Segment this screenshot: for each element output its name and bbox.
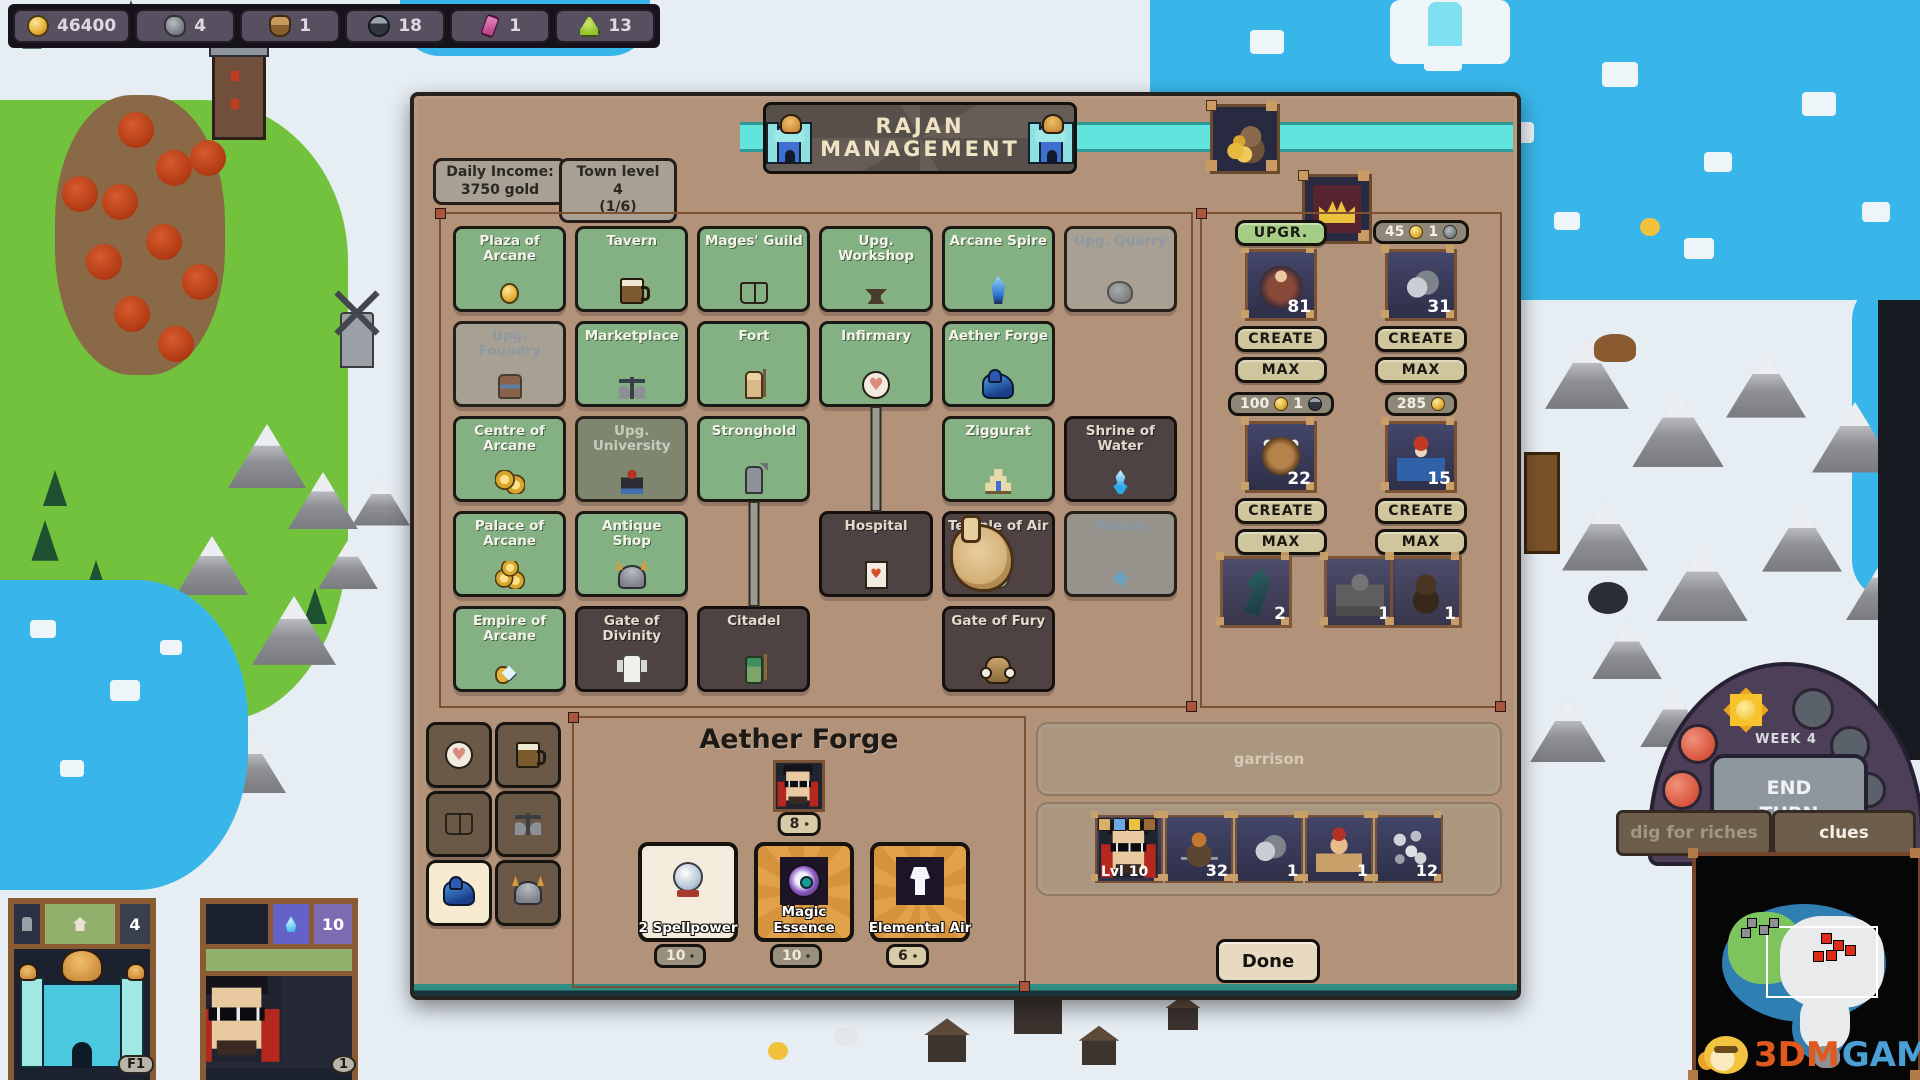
recruit-slot-dwarf: 5081CREATEMAXUPGR. [1216, 220, 1346, 383]
max-button[interactable]: MAX [1375, 357, 1467, 383]
recruit-panel: 5081CREATEMAXUPGR.45131CREATEMAX100122CR… [1200, 212, 1498, 704]
town-portrait-castle[interactable] [14, 949, 150, 1068]
gems-icon [578, 15, 600, 37]
building-aether-forge[interactable]: Aether Forge [942, 321, 1055, 407]
shortcut-tavern[interactable] [495, 722, 561, 788]
minimap-enemy-marker [1826, 950, 1837, 961]
hero-mana-value: 10 [314, 904, 352, 944]
palacegem-icon [1109, 565, 1131, 589]
building-label: Fort [738, 329, 769, 344]
item-label: Magic Essence [750, 904, 858, 936]
angel-icon [622, 654, 642, 684]
spire-icon [989, 276, 1007, 304]
map-goat [834, 1028, 858, 1046]
forge-icon [443, 880, 475, 906]
building-label: Plaza of Arcane [459, 234, 560, 264]
building-icon-wrap [495, 462, 525, 496]
building-label: Empire of Arcane [459, 614, 560, 644]
building-gate-of-divinity[interactable]: Gate of Divinity [575, 606, 688, 692]
map-decor [60, 760, 84, 777]
shortcut-mages-guild[interactable] [426, 791, 492, 857]
building-detail-panel: Aether Forge 8 2 Spellpower10Magic Essen… [572, 716, 1026, 988]
building-label: Upg. Workshop [825, 234, 926, 264]
game-screen: 464004118113 RAJAN MANAGEMENT Daily Inco… [0, 0, 1920, 1080]
resource-wood: 1 [240, 9, 340, 43]
map-decor [1592, 622, 1662, 679]
building-palace[interactable]: Palace [1064, 511, 1177, 597]
resource-gems: 13 [555, 9, 655, 43]
helm-icon [618, 565, 646, 589]
golem-sprite [1336, 568, 1384, 616]
map-horse [1594, 334, 1636, 362]
item-icon-frame [780, 857, 828, 905]
building-upg-university[interactable]: Upg. University [575, 416, 688, 502]
watermark: 3DMGAME [1700, 1032, 1920, 1078]
map-chick [768, 1042, 788, 1060]
town-slot-panel[interactable]: 4 F1 [8, 898, 156, 1080]
map-hut [1082, 1038, 1116, 1065]
create-button[interactable]: CREATE [1235, 326, 1327, 352]
ore-icon [1443, 225, 1457, 239]
map-decor [158, 326, 194, 362]
building-ziggurat[interactable]: Ziggurat [942, 416, 1055, 502]
map-cauldron [1588, 582, 1628, 614]
building-icon-wrap [745, 462, 763, 496]
max-button[interactable]: MAX [1235, 529, 1327, 555]
building-shrine-of-water[interactable]: Shrine of Water [1064, 416, 1177, 502]
book-icon [740, 282, 768, 304]
item-cost-chip: 10 [654, 944, 706, 968]
mana-icon [268, 904, 314, 944]
army-count: Lvl 10 [1101, 864, 1158, 880]
map-windmill [340, 312, 374, 368]
building-icon-wrap [745, 367, 763, 401]
gold-icon [1409, 225, 1423, 239]
merchant-tab-button[interactable] [1210, 104, 1280, 174]
map-decor [1704, 152, 1732, 172]
building-icon-wrap [982, 367, 1014, 401]
map-decor [1554, 212, 1580, 230]
building-icon-wrap [618, 557, 646, 591]
building-label: Centre of Arcane [459, 424, 560, 454]
coin-icon [500, 283, 519, 304]
day-pip [1792, 688, 1834, 730]
done-button[interactable]: Done [1216, 939, 1320, 983]
unit-tab-icon[interactable] [14, 904, 45, 944]
item-icon-frame [673, 862, 703, 896]
building-arcane-spire[interactable]: Arcane Spire [942, 226, 1055, 312]
ore-icon [164, 15, 186, 37]
building-icon-wrap [1107, 272, 1133, 306]
building-label: Stronghold [712, 424, 797, 439]
tech-connector [697, 511, 810, 597]
air-icon [910, 867, 930, 895]
building-gate-of-fury[interactable]: Gate of Fury [942, 606, 1055, 692]
map-decor [156, 150, 192, 186]
minimap-neutral-marker [1759, 925, 1769, 935]
building-icon-wrap [495, 557, 525, 591]
building-label: Palace [1096, 519, 1146, 534]
scales-icon [619, 377, 645, 399]
item-cost-value: 6 [898, 948, 908, 964]
map-decor [1762, 506, 1842, 572]
brawler-sprite [1316, 826, 1362, 872]
waterflame-icon [1112, 470, 1129, 494]
mercury-icon [368, 15, 390, 37]
building-icon-wrap [622, 652, 642, 686]
building-label: Upg. Quarry [1074, 234, 1166, 249]
building-label: Palace of Arcane [459, 519, 560, 549]
rat-sprite [1246, 826, 1292, 872]
building-icon-wrap [497, 652, 523, 686]
max-button[interactable]: MAX [1235, 357, 1327, 383]
map-decor [1726, 352, 1806, 418]
building-centre-of-arcane[interactable]: Centre of Arcane [453, 416, 566, 502]
map-decor [1878, 300, 1920, 760]
building-icon-wrap [1109, 557, 1131, 591]
building-label: Gate of Divinity [581, 614, 682, 644]
resource-gold: 46400 [13, 9, 130, 43]
cost-value: 285 [1397, 396, 1426, 412]
building-infirmary[interactable]: Infirmary [819, 321, 932, 407]
resource-bar: 464004118113 [8, 4, 660, 48]
scholar-icon [621, 470, 643, 494]
map-decor [182, 264, 218, 300]
essence-icon [912, 954, 917, 959]
army-count: 32 [1206, 861, 1228, 880]
item-cost-chip: 6 [886, 944, 929, 968]
recruit-cost: 451 [1373, 220, 1469, 244]
helm-icon [514, 881, 542, 905]
minimap-enemy-marker [1845, 945, 1856, 956]
building-label: Shrine of Water [1070, 424, 1171, 454]
cost-value: 100 [1240, 396, 1269, 412]
building-icon-wrap [989, 272, 1007, 306]
building-upg-workshop[interactable]: Upg. Workshop [819, 226, 932, 312]
army-count: 1 [1287, 861, 1298, 880]
hero-artifact-icons [1098, 818, 1156, 831]
building-palace-of-arcane[interactable]: Palace of Arcane [453, 511, 566, 597]
map-decor [62, 176, 98, 212]
building-marketplace[interactable]: Marketplace [575, 321, 688, 407]
anvil-icon [865, 287, 887, 304]
building-empire-of-arcane[interactable]: Empire of Arcane [453, 606, 566, 692]
gold-icon [1431, 397, 1445, 411]
shortcut-antique-shop[interactable] [495, 860, 561, 926]
day-sun-icon [1724, 688, 1768, 732]
map-decor [102, 184, 138, 220]
crystal-icon [480, 13, 500, 38]
daily-income-chip: Daily Income: 3750 gold [433, 158, 567, 205]
garrison-dropzone[interactable]: garrison [1036, 722, 1502, 796]
town-hotkey-badge: F1 [118, 1055, 154, 1074]
visiting-army-row: Lvl 10321112 [1036, 802, 1502, 896]
building-antique-shop[interactable]: Antique Shop [575, 511, 688, 597]
army-unit-cell[interactable]: 32 [1165, 815, 1233, 883]
demon-icon [985, 656, 1011, 684]
building-label: Aether Forge [948, 329, 1048, 344]
resource-mercury: 18 [345, 9, 445, 43]
essence-icon [804, 822, 809, 827]
reserve-count: 1 [1444, 604, 1456, 624]
building-label: Arcane Spire [949, 234, 1047, 249]
building-label: Ziggurat [965, 424, 1031, 439]
rock-icon [1107, 281, 1133, 304]
gold-merchant-icon [1221, 115, 1269, 163]
item-cost-chip: 10 [770, 944, 822, 968]
building-label: Citadel [727, 614, 781, 629]
wizard-icon [745, 656, 763, 684]
map-hut [1014, 996, 1062, 1034]
forge-item-magic-essence[interactable]: Magic Essence [754, 842, 854, 942]
wood-icon [269, 15, 291, 37]
gold-icon [27, 15, 49, 37]
cardheart-icon [865, 561, 888, 589]
item-label: 2 Spellpower [634, 920, 742, 936]
soldier-icon [745, 466, 763, 494]
minimap-enemy-marker [1813, 951, 1824, 962]
house-icon [73, 917, 87, 931]
recruit-count: 22 [1287, 469, 1311, 489]
building-label: Antique Shop [581, 519, 682, 549]
recruit-portrait[interactable]: 15 [1385, 421, 1457, 493]
resource-value: 18 [398, 16, 422, 36]
map-hut [1168, 1006, 1198, 1030]
minimap-neutral-marker [1747, 918, 1757, 928]
coins2-icon [495, 470, 525, 494]
mug-icon [516, 742, 540, 768]
building-icon-wrap [1112, 462, 1129, 496]
resource-value: 1 [509, 16, 521, 36]
town-count: 4 [120, 904, 150, 944]
building-label: Gate of Fury [951, 614, 1045, 629]
recruit-cost: 285 [1385, 392, 1457, 416]
upgr-button[interactable]: UPGR. [1235, 220, 1327, 246]
watermark-logo [1700, 1032, 1752, 1078]
resource-value: 13 [608, 16, 632, 36]
recruit-slot-mage: 28515CREATEMAX [1356, 392, 1486, 555]
map-decor [1684, 238, 1714, 259]
gold-icon [1274, 397, 1288, 411]
mug-icon [620, 278, 644, 304]
building-icon-wrap [500, 272, 519, 306]
castle-icon [1028, 112, 1074, 164]
resource-value: 1 [299, 16, 311, 36]
map-decor [1562, 500, 1648, 571]
recruit-count: 15 [1427, 469, 1451, 489]
building-icon-wrap [619, 367, 645, 401]
hero-slot-panel[interactable]: 10 1 [200, 898, 358, 1080]
building-label: Upg. University [581, 424, 682, 454]
recruit-portrait[interactable]: 81 [1245, 249, 1317, 321]
create-button[interactable]: CREATE [1235, 498, 1327, 524]
item-label: Elemental Air [866, 920, 974, 936]
bear-sprite [1402, 568, 1450, 616]
map-chick [1640, 218, 1660, 236]
essence-available-chip: 8 [778, 812, 821, 836]
guard-icon [745, 371, 763, 399]
army-count: 12 [1416, 861, 1438, 880]
hero-portrait-large[interactable] [206, 976, 352, 1068]
map-decor [110, 680, 140, 701]
map-decor [118, 112, 154, 148]
building-icon-wrap [740, 272, 768, 306]
item-icon-frame [896, 857, 944, 905]
building-grid: Plaza of ArcaneTavernMages' GuildUpg. Wo… [441, 214, 1189, 704]
building-label: Infirmary [841, 329, 911, 344]
map-decor [1602, 62, 1638, 87]
orb-icon [673, 862, 703, 892]
map-decor [86, 244, 122, 280]
forge-hero-portrait [773, 760, 825, 812]
building-label: Upg. Foundry [459, 329, 560, 359]
shortcut-aether-forge[interactable] [426, 860, 492, 926]
eye-icon [787, 864, 821, 898]
cost-value: 1 [1293, 396, 1303, 412]
resource-ore: 4 [135, 9, 235, 43]
building-icon-wrap [865, 557, 888, 591]
garrison-label: garrison [1234, 750, 1305, 768]
map-decor [1632, 392, 1724, 467]
map-derrick [1524, 452, 1560, 554]
map-decor [160, 640, 182, 655]
building-label: Marketplace [585, 329, 679, 344]
building-label: Hospital [845, 519, 908, 534]
building-stronghold[interactable]: Stronghold [697, 416, 810, 502]
forge-item-2-spellpower[interactable]: 2 Spellpower [638, 842, 738, 942]
day-pip-red [1662, 770, 1702, 810]
town-management-dialog: RAJAN MANAGEMENT Daily Income: 3750 gold… [410, 92, 1521, 1000]
ziggurat-icon [985, 469, 1011, 494]
scales-icon [515, 813, 541, 835]
minimap-neutral-marker [1769, 918, 1779, 928]
building-detail-title: Aether Forge [574, 724, 1024, 755]
shortcut-marketplace[interactable] [495, 791, 561, 857]
cost-value: 45 [1385, 224, 1404, 240]
recruit-count: 31 [1427, 297, 1451, 317]
forge-icon [982, 373, 1014, 399]
recruit-portrait[interactable]: 31 [1385, 249, 1457, 321]
building-mages-guild[interactable]: Mages' Guild [697, 226, 810, 312]
building-label: Mages' Guild [705, 234, 803, 249]
map-decor [30, 620, 56, 638]
essence-icon [806, 954, 811, 959]
elemental-sprite [1232, 568, 1280, 616]
minimap-neutral-marker [1741, 928, 1751, 938]
dialog-title-plate: RAJAN MANAGEMENT [763, 102, 1077, 174]
mercury-icon [1308, 397, 1322, 411]
map-decor [1428, 2, 1462, 46]
map-decor [146, 224, 182, 260]
building-icon-wrap [865, 272, 887, 306]
shortcut-infirmary[interactable] [426, 722, 492, 788]
town-growth-bar [45, 904, 120, 944]
recruit-slot-rat: 45131CREATEMAX [1356, 220, 1486, 383]
reserve-count: 2 [1274, 604, 1286, 624]
army-unit-cell[interactable]: 12 [1375, 815, 1443, 883]
resource-value: 4 [194, 16, 206, 36]
hero-xp-bar [206, 949, 352, 976]
map-decor [1862, 202, 1890, 222]
cost-value: 1 [1428, 224, 1438, 240]
forge-item-elemental-air[interactable]: Elemental Air [870, 842, 970, 942]
recruit-cost: 1001 [1228, 392, 1334, 416]
building-icon-wrap [985, 462, 1011, 496]
building-citadel[interactable]: Citadel [697, 606, 810, 692]
building-icon-wrap [985, 652, 1011, 686]
castle-icon [766, 112, 812, 164]
coins3-icon [495, 561, 525, 589]
army-unit-cell[interactable]: 1 [1235, 815, 1303, 883]
minimap[interactable]: 3DMGAME [1692, 852, 1920, 1080]
building-icon-wrap [862, 367, 890, 401]
diamond-icon [497, 660, 523, 684]
map-decor [1250, 30, 1284, 54]
army-hero-cell[interactable]: Lvl 10 [1095, 815, 1163, 883]
map-decor [1656, 546, 1748, 621]
item-cost-value: 10 [782, 948, 801, 964]
building-label: Tavern [606, 234, 657, 249]
map-decor [352, 478, 410, 526]
reserve-count: 1 [1378, 604, 1390, 624]
map-hut [928, 1032, 966, 1062]
clues-button[interactable]: clues [1772, 810, 1916, 856]
heart-icon [862, 371, 890, 399]
essence-icon [690, 954, 695, 959]
building-plaza-of-arcane[interactable]: Plaza of Arcane [453, 226, 566, 312]
reserve-unit[interactable]: 2 [1220, 556, 1292, 628]
map-decor [114, 296, 150, 332]
building-hospital[interactable]: Hospital [819, 511, 932, 597]
recruit-count: 81 [1287, 297, 1311, 317]
building-upg-quarry[interactable]: Upg. Quarry [1064, 226, 1177, 312]
reserve-unit[interactable]: 1 [1390, 556, 1462, 628]
map-decor [1530, 700, 1606, 762]
building-fort[interactable]: Fort [697, 321, 810, 407]
map-tower [212, 38, 266, 140]
recruit-slot-gargoyle: 100122CREATEMAX [1216, 392, 1346, 555]
create-button[interactable]: CREATE [1375, 498, 1467, 524]
book-icon [445, 813, 473, 835]
reserve-unit[interactable]: 1 [1324, 556, 1396, 628]
week-label: WEEK 4 [1652, 732, 1920, 747]
minimap-enemy-marker [1821, 933, 1832, 944]
armor-icon [498, 374, 522, 399]
tech-connector [819, 416, 932, 502]
heart-icon [445, 741, 473, 769]
recruit-portrait[interactable]: 22 [1245, 421, 1317, 493]
building-tavern[interactable]: Tavern [575, 226, 688, 312]
map-decor [190, 140, 226, 176]
army-count: 1 [1357, 861, 1368, 880]
building-icon-wrap [620, 272, 644, 306]
resource-crystal: 1 [450, 9, 550, 43]
create-button[interactable]: CREATE [1375, 326, 1467, 352]
item-cost-value: 10 [666, 948, 685, 964]
map-decor [1802, 92, 1836, 116]
army-unit-cell[interactable]: 1 [1305, 815, 1373, 883]
building-icon-wrap [621, 462, 643, 496]
hero-count-badge: 1 [331, 1055, 356, 1074]
resource-value: 46400 [57, 16, 116, 36]
building-shortcut-sidebar [426, 722, 561, 926]
building-icon-wrap [745, 652, 763, 686]
building-upg-foundry[interactable]: Upg. Foundry [453, 321, 566, 407]
dialog-title: RAJAN MANAGEMENT [820, 115, 1020, 161]
building-icon-wrap [498, 367, 522, 401]
